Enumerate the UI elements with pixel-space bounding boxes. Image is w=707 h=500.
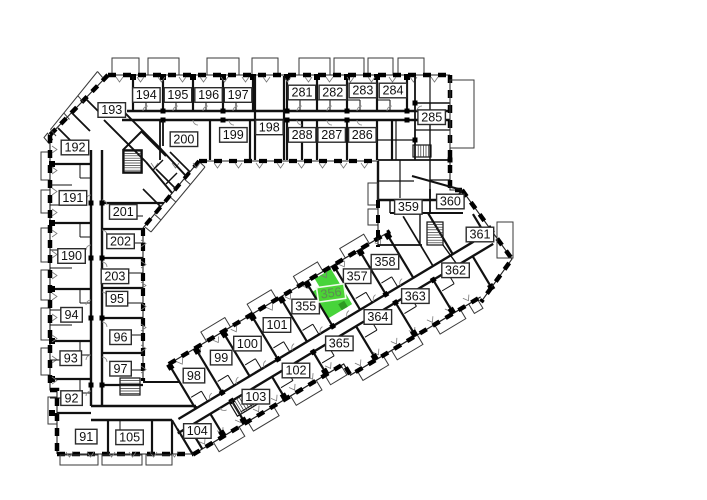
svg-text:355: 355	[295, 300, 316, 314]
svg-text:199: 199	[223, 128, 244, 142]
svg-text:101: 101	[266, 318, 287, 332]
svg-text:200: 200	[173, 132, 194, 146]
svg-text:103: 103	[245, 390, 266, 404]
svg-text:361: 361	[469, 228, 490, 242]
svg-text:195: 195	[167, 88, 188, 102]
svg-text:203: 203	[104, 270, 125, 284]
svg-text:363: 363	[405, 289, 426, 303]
svg-text:96: 96	[113, 330, 127, 344]
svg-text:192: 192	[64, 141, 85, 155]
svg-text:360: 360	[440, 195, 461, 209]
svg-text:285: 285	[421, 110, 442, 124]
svg-text:98: 98	[187, 369, 201, 383]
svg-text:359: 359	[398, 200, 419, 214]
svg-text:365: 365	[329, 337, 350, 351]
svg-text:91: 91	[79, 430, 93, 444]
svg-text:190: 190	[61, 249, 82, 263]
svg-text:196: 196	[198, 88, 219, 102]
svg-text:104: 104	[187, 424, 208, 438]
svg-text:194: 194	[136, 88, 157, 102]
svg-text:357: 357	[347, 269, 368, 283]
svg-text:100: 100	[237, 337, 258, 351]
svg-text:94: 94	[64, 308, 78, 322]
svg-text:282: 282	[322, 86, 343, 100]
svg-text:198: 198	[259, 121, 280, 135]
svg-text:287: 287	[321, 128, 342, 142]
svg-text:201: 201	[113, 205, 134, 219]
svg-text:364: 364	[367, 310, 388, 324]
svg-text:95: 95	[110, 292, 124, 306]
svg-text:102: 102	[285, 364, 306, 378]
svg-text:281: 281	[291, 86, 312, 100]
svg-text:197: 197	[228, 88, 249, 102]
svg-text:99: 99	[214, 351, 228, 365]
svg-text:202: 202	[110, 235, 131, 249]
svg-text:283: 283	[352, 84, 373, 98]
svg-text:288: 288	[292, 128, 313, 142]
svg-text:105: 105	[119, 431, 140, 445]
svg-text:97: 97	[113, 362, 127, 376]
svg-text:191: 191	[62, 191, 83, 205]
svg-text:193: 193	[101, 103, 122, 117]
svg-text:284: 284	[382, 84, 403, 98]
svg-text:286: 286	[352, 128, 373, 142]
svg-text:356: 356	[320, 285, 343, 302]
svg-text:362: 362	[445, 264, 466, 278]
svg-text:92: 92	[64, 391, 78, 405]
svg-text:358: 358	[374, 255, 395, 269]
svg-text:93: 93	[64, 351, 78, 365]
